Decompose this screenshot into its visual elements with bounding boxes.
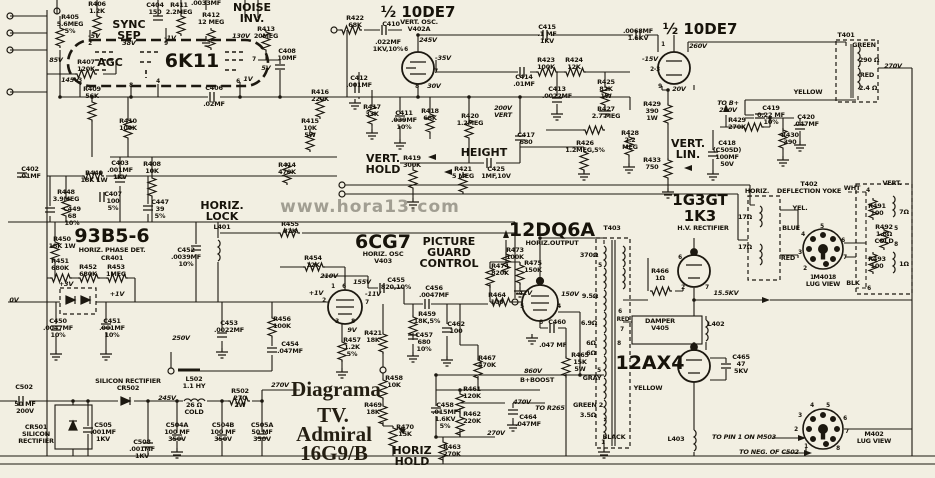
voltage: 85V: [49, 57, 62, 64]
resistor-label: R412 12 MEG: [198, 12, 224, 26]
label-layer: R406 1.2KR405 5.6MEG 5%SYNC SEPC404 150R…: [0, 0, 935, 478]
pin-number: 7: [365, 300, 369, 306]
pin-number: 8: [415, 84, 419, 90]
cap-label: C460: [548, 319, 566, 326]
cap-label: .0033MF: [191, 0, 221, 7]
pin-number: 9: [164, 41, 168, 47]
resistor-label: R470 15K: [396, 424, 414, 438]
pin-number: 4: [801, 232, 805, 238]
pin-number: 2: [794, 427, 798, 433]
tube-name-6k11: 6K11: [165, 51, 219, 72]
pin-number: 4: [156, 79, 160, 85]
detector-ref: CR401: [101, 255, 123, 262]
cap-label: C502: [15, 384, 33, 391]
wire-color: GRAY: [583, 375, 602, 382]
transformer-label-t403: T403: [603, 225, 620, 232]
voltage: 260V: [689, 43, 707, 50]
tube-name-10de7-b: ½ 10DE7: [663, 21, 738, 37]
resistor-label: R419 300K: [403, 155, 421, 169]
resistor-label: R411 2.2MEG: [166, 2, 193, 16]
cap-label: C420 .047MF: [793, 114, 819, 128]
voltage: 130V: [232, 33, 250, 40]
resistor-label: R453 1MEG: [106, 264, 126, 278]
cap-label: C412 .001MF: [346, 75, 372, 89]
pin-number: 6: [841, 238, 845, 244]
cap-label: C453 .0022MF: [214, 320, 244, 334]
pin-number: 6: [404, 47, 408, 53]
voltage: 15.5KV: [714, 290, 739, 297]
resistor-label: R458 10K: [385, 375, 403, 389]
wire-color: YELLOW: [794, 89, 823, 96]
resistor-label: R462 220K: [463, 411, 481, 425]
pin-number: 8: [894, 242, 898, 248]
resistor-label: R455 82K: [281, 221, 299, 235]
resistor-label: R410 100K: [119, 118, 137, 132]
pin-number: 5: [826, 403, 830, 409]
tube-ref: V403: [374, 258, 392, 265]
voltage: 145V: [61, 77, 79, 84]
resistor-label: R422 68K: [346, 15, 364, 29]
section-title-vert-hold: VERT. HOLD: [366, 153, 401, 175]
resistor-label: R426 1.2MEG,5%: [565, 140, 604, 154]
cap-label: C418 (C505D) 100MF 50V: [713, 140, 741, 168]
pin-number: 4: [557, 304, 561, 310]
winding-value: 290 Ω: [859, 57, 879, 64]
resistor-label: R421 18K: [364, 330, 382, 344]
cap-label: C411 .039MF 10%: [391, 110, 417, 131]
pin-number: 6: [618, 309, 622, 315]
coil-label: L401: [214, 224, 231, 231]
resistor-label: R454 12K: [304, 255, 322, 269]
pin-number: 6: [867, 286, 871, 292]
pin-number: 7: [845, 429, 849, 435]
resistor-label: R416 220K: [311, 89, 329, 103]
cap-label: C402 .01MF: [19, 166, 40, 180]
voltage: -41V: [516, 290, 532, 297]
cap-label: C457 680 10%: [415, 332, 433, 353]
resistor-label: R464 100: [488, 292, 506, 306]
voltage: 30V: [427, 83, 440, 90]
pin-number: 3: [798, 413, 802, 419]
cap-label: C414 .01MF: [513, 74, 534, 88]
pin-number: 5: [597, 368, 601, 374]
wire-color: YEL.: [793, 205, 808, 212]
cap-label: C408 10MF: [277, 48, 296, 62]
pin-number: 3: [335, 319, 339, 325]
section-title-agc: AGC: [97, 57, 123, 68]
pin-number: 6: [678, 255, 682, 261]
pin-number: 1: [804, 444, 808, 450]
resistor-label: R408 10K: [143, 161, 161, 175]
cap-label: C450 .0047MF 10%: [43, 318, 73, 339]
wire-color: RED: [860, 72, 874, 79]
resistor-label: R433 750: [643, 157, 661, 171]
pin-number: 3: [798, 250, 802, 256]
resistor-label: R475 150K: [524, 260, 542, 274]
voltage: +3V: [59, 281, 73, 288]
cap-label: C425 1MF,10V: [481, 166, 511, 180]
resistor-label: R421 5 MEG: [452, 166, 474, 180]
cap-label: C452 .0039MF 10%: [171, 247, 201, 268]
resistor-label: R417 33K: [363, 104, 381, 118]
resistor-label: R415 10K 5W: [301, 118, 319, 139]
winding-value: 3.5Ω: [580, 412, 596, 419]
winding-value: 6Ω: [586, 350, 596, 357]
winding-value: 17Ω: [738, 244, 752, 251]
tube-ref: V402A: [408, 26, 431, 33]
cap-label: C403 .001MF 1KV: [107, 160, 133, 181]
tube-subtitle: HORIZ.OUTPUT: [526, 240, 579, 247]
resistor-label: R407 120K: [77, 59, 95, 73]
pin-number: 7: [620, 327, 624, 333]
resistor-label: R502 270 2W: [231, 388, 249, 409]
resistor-label: R414 470K: [278, 162, 296, 176]
voltage: 1V: [243, 76, 252, 83]
voltage: -5V: [88, 33, 100, 40]
resistor-label: R420 1.2MEG: [457, 113, 484, 127]
resistor-label: R456 100K: [273, 316, 291, 330]
winding-value: 17Ω: [738, 214, 752, 221]
pin-number: 8: [129, 83, 133, 89]
yoke-label: T402 DEFLECTION YOKE: [777, 181, 841, 195]
resistor-label: R450 18K 1W: [49, 236, 76, 250]
cap-label: C404 150: [146, 2, 164, 16]
resistor-label: R461 120K: [463, 386, 481, 400]
wire-color: BLK: [846, 280, 860, 287]
cap-label: C458 .015MF 1.6KV 5%: [432, 402, 458, 430]
yoke-section: VERT.: [882, 180, 901, 187]
transformer-label-t401: T401: [837, 32, 854, 39]
voltage: 250V: [172, 335, 190, 342]
cap-label: C455 820,10%: [381, 277, 411, 291]
voltage: 150V: [561, 291, 579, 298]
resistor-label: R409 56K: [83, 86, 101, 100]
resistor-label: R451 680K: [51, 258, 69, 272]
wire-color: RED: [781, 255, 795, 262]
caption-line4: 16G9/B: [300, 442, 368, 465]
resistor-label: R474 820K: [491, 263, 509, 277]
cap-label: C406: [205, 85, 223, 92]
voltage: 210V: [320, 273, 338, 280]
winding-value: 2.4 Ω: [859, 85, 877, 92]
resistor-label: R406 1.2K: [88, 1, 106, 15]
voltage: 270V: [884, 63, 902, 70]
pin-number: 5: [598, 263, 602, 269]
pin-number: 5: [520, 304, 524, 310]
voltage: TO R265: [535, 405, 564, 412]
wire-color: BLUE: [782, 225, 800, 232]
resistor-label: R427 2.7 MEG: [592, 106, 621, 120]
pin-number: 2: [322, 298, 326, 304]
detector-subtitle: HORIZ. PHASE DET.: [79, 247, 146, 254]
resistor-label: R405 5.6MEG 5%: [57, 14, 84, 35]
resistor-label: R463 270K: [443, 444, 461, 458]
cap-label: C449 68 10%: [63, 206, 81, 227]
tube-name-1g3gt: 1G3GT 1K3: [672, 192, 727, 224]
pin-number: 7: [705, 285, 709, 291]
cap-label: C451 .001MF 10%: [99, 318, 125, 339]
caption-line1: Diagrama: [291, 378, 381, 401]
yoke-section: HORIZ.: [745, 188, 769, 195]
pin-number: 2: [88, 41, 92, 47]
cap-label: .0068MF 1.6KV: [623, 28, 653, 42]
tube-subtitle: H.V. RECTIFIER: [677, 225, 728, 232]
cap-label: C462 100: [447, 321, 465, 335]
coil-label: L502 1.1 HY: [183, 376, 206, 390]
cap-label: C465 47 5KV: [732, 354, 750, 375]
cap-label: C504A 100 MF 350V: [164, 422, 190, 443]
cap-label: C410: [382, 21, 400, 28]
resistor-label: R418 68K: [421, 108, 439, 122]
voltage: -11V: [365, 291, 381, 298]
pin-number: 8: [539, 320, 543, 326]
coil-label: L403: [668, 436, 685, 443]
bus-label: B+BOOST: [520, 377, 554, 384]
resistor-label: R466 1Ω: [651, 268, 669, 282]
winding-value: 6.9Ω: [581, 320, 597, 327]
cap-label: C508 .001MF 1KV: [129, 439, 155, 460]
note: TO NEG. OF C502: [739, 449, 799, 456]
resistor-label: R428 2.2 MEG: [621, 130, 639, 151]
winding-value: 7Ω: [899, 209, 909, 216]
pin-number: 7: [252, 57, 256, 63]
wire-color: BLACK: [603, 434, 626, 441]
pin-number: 8: [351, 319, 355, 325]
voltage: 245V: [419, 37, 437, 44]
pin-number: 5: [820, 224, 824, 230]
pin-number: 3: [78, 78, 82, 84]
winding-value: 6Ω: [586, 340, 596, 347]
tube-name-12dq6a: 12DQ6A: [509, 220, 595, 241]
pin-number: 1: [661, 42, 665, 48]
resistor-label: R452 680K: [79, 264, 97, 278]
voltage: 155V: [353, 279, 371, 286]
voltage: -15V: [642, 56, 658, 63]
cap-label: C505 .001MF 1KV: [90, 422, 116, 443]
pin-number: 8: [836, 446, 840, 452]
cap-label: C464 .047MF: [515, 414, 541, 428]
cap-label: C456 .0047MF: [419, 285, 449, 299]
resistor-label: R491 100: [868, 203, 886, 217]
voltage: 245V: [158, 395, 176, 402]
winding-value: 370Ω: [580, 252, 598, 259]
voltage: 38V: [122, 40, 135, 47]
resistor-label: R429 390 1W: [643, 101, 661, 122]
resistor-label: R425 82K 1W: [597, 79, 615, 100]
resistor-label: R440 18K 1W: [81, 170, 108, 184]
resistor-label: R459 18K,5%: [414, 311, 440, 325]
voltage: 9V: [347, 327, 356, 334]
winding-value: 26 Ω COLD: [184, 402, 203, 416]
resistor-label: R457 1.2K 5%: [343, 337, 361, 358]
resistor-label: R413 20MEG: [254, 26, 278, 40]
pin-number: 2: [681, 285, 685, 291]
wire-color: GREEN 2: [573, 402, 603, 409]
pin-number: 4: [866, 188, 870, 194]
pin-number: 7: [434, 69, 438, 75]
cap-label: C419 0.22 MF 10%: [757, 105, 785, 126]
resistor-label: R492 1.8Ω COLD: [874, 224, 893, 245]
section-title-picture-guard: PICTURE GUARD CONTROL: [420, 236, 479, 270]
watermark: www.hora13.com: [280, 198, 460, 216]
cap-label: C415 .1 MF 1KV: [537, 24, 556, 45]
voltage: -35V: [435, 55, 451, 62]
cap-label: C407 100 5%: [104, 191, 122, 212]
winding-value: 9.5Ω: [582, 293, 598, 300]
tube-name-12ax4: 12AX4: [615, 353, 684, 374]
detector-name: 93B5-6: [74, 226, 149, 247]
coil-label: L402: [708, 321, 725, 328]
pin-number: 6: [843, 416, 847, 422]
pin-number: 5: [894, 226, 898, 232]
section-title-noise-inv: NOISE INV.: [233, 2, 271, 24]
wire-color: YELLOW: [634, 385, 663, 392]
resistor-label: R424 12K: [565, 57, 583, 71]
resistor-label: R423 100K: [537, 57, 555, 71]
pin-number: 9: [658, 84, 662, 90]
voltage: 860V: [524, 368, 542, 375]
tube-subtitle: DAMPER V405: [645, 318, 675, 332]
pin-number: 8: [617, 341, 621, 347]
voltage: 470V: [513, 399, 531, 406]
rectifier-label: CR501 SILICON RECTIFIER: [18, 424, 54, 445]
pin-number: 1: [601, 440, 605, 446]
pin-number: 8: [832, 275, 836, 281]
voltage: 270V: [487, 430, 505, 437]
voltage: 200V VERT: [494, 105, 512, 119]
pin-number: 1: [331, 284, 335, 290]
cap-label: .02MF: [203, 101, 224, 108]
cap-label: C454 .047MF: [277, 341, 303, 355]
cap-label: C504B 100 MF 350V: [210, 422, 236, 443]
wire-color: WHT: [844, 185, 860, 192]
voltage: 270V: [271, 382, 289, 389]
resistor-label: R473 100K: [506, 247, 524, 261]
pin-number: 7: [843, 255, 847, 261]
note: TO PIN 1 ON M503: [712, 434, 776, 441]
schematic-page: R406 1.2KR405 5.6MEG 5%SYNC SEPC404 150R…: [0, 0, 935, 478]
voltage: 20V: [672, 86, 685, 93]
section-title-horiz-hold: HORIZ HOLD: [392, 445, 431, 467]
socket-label-m402: M402 LUG VIEW: [857, 431, 891, 445]
cap-label: .047 MF: [539, 342, 567, 349]
resistor-label: R469 18K: [364, 402, 382, 416]
voltage: TO B+ 250V: [717, 100, 739, 114]
voltage: 5V: [261, 65, 270, 72]
wire-color: RED: [617, 317, 630, 323]
section-title-vert-lin: VERT. LIN.: [671, 138, 705, 160]
pin-number: 6: [236, 79, 240, 85]
resistor-label: R429 270K: [728, 117, 746, 131]
resistor-label: R448 3.9MEG: [53, 189, 80, 203]
voltage: +1V: [309, 290, 323, 297]
winding-value: 1Ω: [899, 261, 909, 268]
cap-label: .022MF 1KV,10%: [373, 39, 403, 53]
pin-number: 1: [810, 275, 814, 281]
pin-number: 4: [810, 403, 814, 409]
cap-label: C413 .0022MF: [542, 86, 572, 100]
resistor-label: R430 390: [781, 132, 799, 146]
wire-color: GREEN: [852, 42, 876, 49]
voltage: 0V: [9, 297, 18, 304]
section-title-height: HEIGHT: [461, 147, 508, 158]
cap-label: C505A 50 MF 350V: [251, 422, 273, 443]
resistor-label: R493 100: [868, 256, 886, 270]
pin-number: 2: [803, 266, 807, 272]
cap-label: C417 680: [517, 132, 535, 146]
section-title-horiz-lock: HORIZ. LOCK: [200, 200, 243, 222]
cap-label: C447 39 5%: [151, 199, 169, 220]
voltage: +1V: [110, 291, 124, 298]
pin-number: 2-3: [650, 67, 660, 73]
resistor-label: R467 470K: [478, 355, 496, 369]
pin-number: 6: [342, 284, 346, 290]
cap-label: 50 MF 200V: [14, 401, 35, 415]
rectifier-label: SILICON RECTIFIER CR502: [95, 378, 161, 392]
